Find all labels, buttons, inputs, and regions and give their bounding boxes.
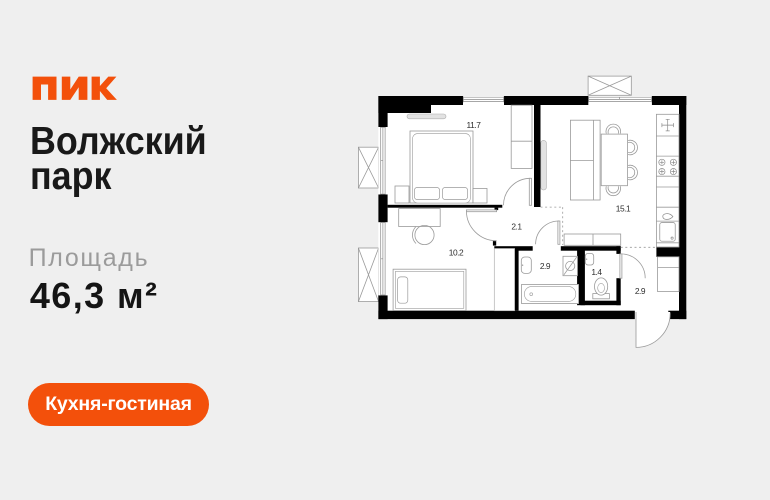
- svg-text:1.4: 1.4: [591, 267, 602, 277]
- svg-text:10.2: 10.2: [449, 248, 464, 258]
- svg-text:11.7: 11.7: [467, 120, 482, 130]
- svg-text:2.9: 2.9: [540, 261, 551, 271]
- svg-text:15.1: 15.1: [616, 204, 631, 214]
- svg-text:2.1: 2.1: [511, 222, 522, 232]
- svg-text:2.9: 2.9: [635, 286, 646, 296]
